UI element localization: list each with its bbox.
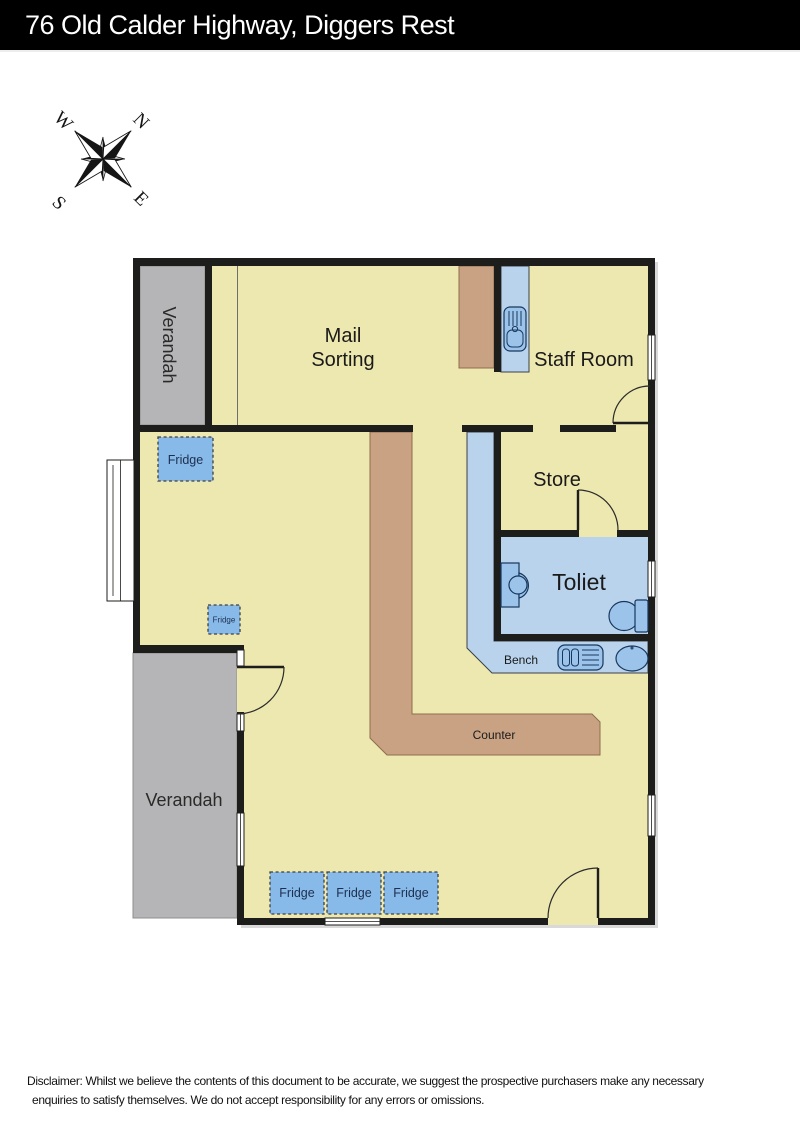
wall-west-return [133,645,244,653]
verandah-bottom-area [133,653,237,918]
staff-room-label: Staff Room [534,349,634,371]
disclaimer-line1: Disclaimer: Whilst we believe the conten… [27,1072,787,1091]
disclaimer: Disclaimer: Whilst we believe the conten… [27,1072,787,1110]
wall-store-toilet-divider-west [494,530,579,537]
compass-rose-icon: N E S W [6,69,191,254]
window-sidelight-west [237,650,244,666]
bench-label: Bench [504,653,538,667]
fridge-2-label: Fridge [213,616,236,625]
counter-label: Counter [473,728,516,742]
mail-sorting-label-line1: Mail [325,325,362,347]
wall-toilet-south [494,634,648,641]
wall-store-toilet-divider-east [617,530,648,537]
fridge-1-label: Fridge [168,453,203,467]
fridge-4-label: Fridge [336,886,371,900]
compass-letter-w: W [49,107,77,135]
disclaimer-line2: enquiries to satisfy themselves. We do n… [27,1091,787,1110]
door-gap-west [237,666,244,712]
sink-icon [558,645,603,670]
verandah-bottom-label: Verandah [145,790,222,810]
compass-letter-e: E [129,187,152,210]
fridge-5-label: Fridge [393,886,428,900]
fridge-3-label: Fridge [279,886,314,900]
basin-icon [616,646,648,671]
mail-sorting-label-line2: Sorting [311,349,374,371]
store-label: Store [533,469,581,491]
wall-staffroom-south [560,425,616,432]
wall-mailsorting-south [133,425,413,432]
compass-letter-n: N [129,109,154,134]
sink-icon [504,307,526,351]
basin-circle [509,576,527,594]
wall-shadow [241,925,658,928]
floorplan-drawing: N E S W [0,0,800,1132]
compass-letter-s: S [48,192,70,214]
toilet-label: Toliet [552,569,606,595]
wall-verandah-top-east [205,258,212,432]
verandah-top-label: Verandah [159,306,179,383]
floorplan-page: 76 Old Calder Highway, Diggers Rest [0,0,800,1132]
door-gap-south [548,918,598,925]
basin-bowl [616,646,648,671]
counter-strip-mailroom [459,266,494,368]
toilet-tank [635,600,648,632]
wall-staffroom-west [494,258,501,372]
toilet-icon [609,600,648,632]
